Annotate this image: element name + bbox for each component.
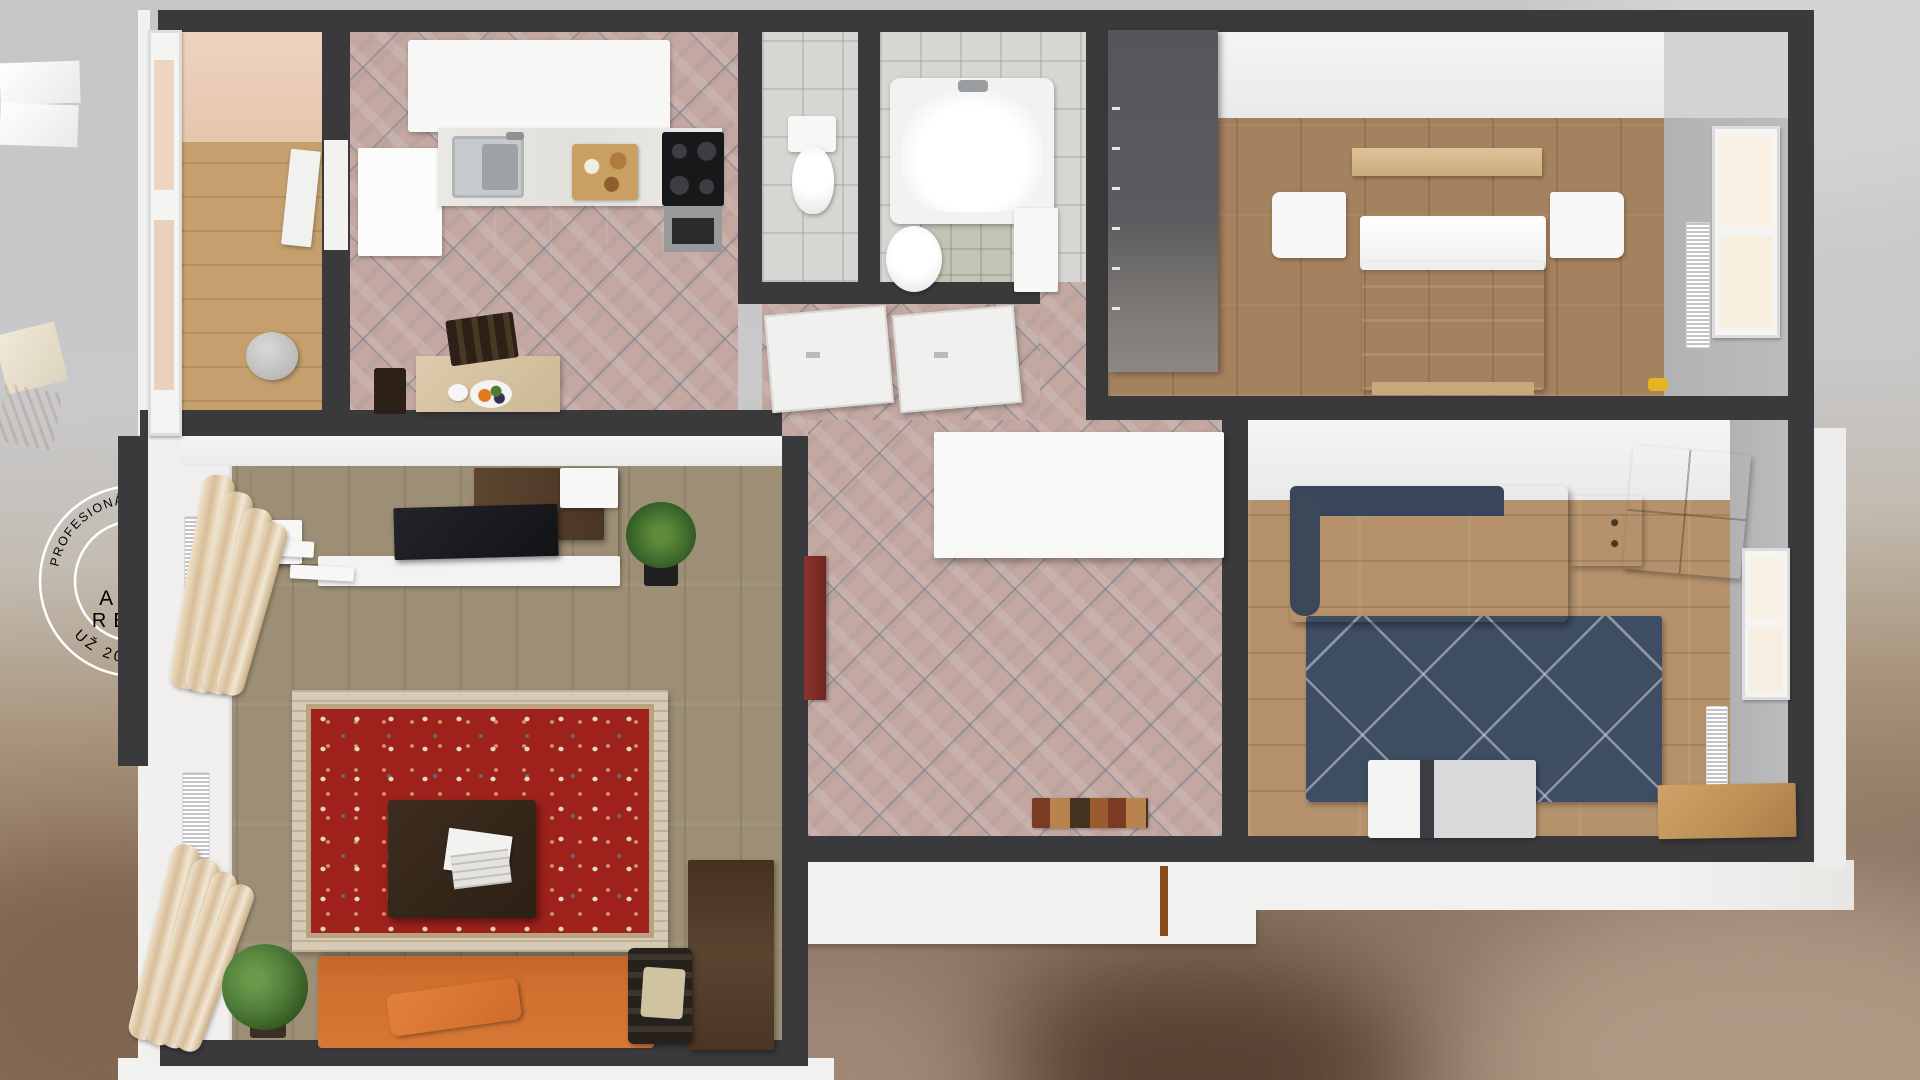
kitchen-oven-glass [672, 218, 714, 244]
bathroom-washer-cabinet [1014, 208, 1058, 292]
coffee-table-magazine2 [450, 849, 512, 890]
toilet-bowl [792, 146, 834, 214]
wall-living-hall [782, 436, 808, 1066]
entrance-door [0, 257, 133, 329]
hallway-wardrobe [934, 432, 1224, 558]
corridor-orange-door [0, 0, 20, 62]
entrance-door-edge [1160, 866, 1168, 936]
tv-unit-white-cube-right [560, 468, 618, 508]
hallway-orange-door-kids [0, 146, 26, 258]
bedroom-window-pane-top [1720, 136, 1772, 226]
wall-bath-bedroom [1086, 10, 1108, 420]
kitchen-lower-cabinets [438, 204, 664, 252]
nightstand-left [1272, 192, 1346, 258]
kids-desk [1658, 783, 1797, 839]
bedroom-radiator [1686, 222, 1710, 348]
shell-kids-bottom [1248, 860, 1854, 910]
kitchen-cooktop [662, 132, 724, 206]
leafy-plant-foliage [222, 944, 308, 1030]
balcony-window-pane [154, 60, 174, 190]
dining-chair-top [445, 311, 519, 366]
dining-plate-fruit [470, 380, 512, 408]
shell-hallway-bottom [796, 860, 1256, 944]
entrance-door-handle [1046, 886, 1072, 908]
wall-hall-bottom [808, 836, 1248, 862]
kids-bed-dark-stripe [1420, 760, 1434, 838]
wall-kids-bottom [1248, 836, 1814, 862]
backdrop-blob-tan-right [1480, 880, 1920, 1080]
wall-kitchen-wc [738, 10, 762, 304]
kids-pillow-2 [0, 383, 63, 450]
bathroom-sink [886, 226, 942, 292]
kids-wardrobe [1623, 445, 1751, 579]
bedroom-window-pane-bottom [1720, 236, 1772, 328]
wall-under-wc-bath [738, 282, 1040, 304]
kids-window-pane-top [1749, 556, 1783, 620]
bedroom-closet [1108, 30, 1218, 372]
kitchen-upper-cabinets [408, 40, 670, 132]
wall-top [158, 10, 1814, 32]
kids-sofa-backrest [1290, 486, 1504, 516]
dining-teapot [448, 384, 468, 401]
wall-bedroom-right [1788, 10, 1814, 420]
wall-wc-bath [858, 30, 880, 304]
shell-right-strip [1814, 428, 1846, 868]
hallway-maroon-door [804, 556, 826, 700]
balcony-window-pane2 [154, 220, 174, 390]
balcony-round-table [246, 332, 298, 380]
plant-spiky-foliage [626, 502, 696, 568]
hallway-doormat [1032, 798, 1148, 828]
vestibule-door-left-handle [806, 352, 820, 358]
bed-foot-board [1372, 382, 1534, 395]
kids-sofa-armrest [1290, 492, 1320, 616]
dining-chair-left [374, 368, 406, 414]
tv-unit-lower-shelf [318, 556, 620, 586]
kitchen-cutting-board [572, 144, 638, 200]
wall-main-left [140, 410, 782, 436]
vestibule-door-right-handle [934, 352, 948, 358]
office-chair-cushion [640, 967, 685, 1020]
bed-grey-blanket [1362, 262, 1544, 390]
corridor-floor [1040, 282, 1086, 436]
backdrop-blob-dark-brown [980, 950, 1420, 1080]
kids-bed-blanket [1434, 760, 1536, 838]
balcony-door-frame [324, 140, 348, 250]
wall-bedroom-bottom [1108, 396, 1814, 420]
wall-kids-left [1222, 396, 1248, 862]
bed-pillow-right [0, 103, 79, 148]
kids-window-pane-bottom [1749, 628, 1783, 692]
bathtub-faucet [958, 80, 988, 92]
bathtub-basin [902, 92, 1042, 212]
floor-plan-render: 310 LOS ANGELES PHL ALL PHIL 215 NEW ORL… [0, 0, 1920, 1080]
bedroom-closet-shelf-lines [1112, 70, 1120, 310]
bedroom-yellow-toy [1648, 378, 1668, 391]
balcony-peach-wall [180, 30, 322, 142]
kitchen-fridge [358, 148, 442, 256]
vestibule-door-right [892, 305, 1022, 413]
wall-living-left-outer [118, 436, 148, 766]
flat-tv [393, 504, 558, 560]
nightstand-right [1550, 192, 1624, 258]
bed-headboard [1352, 148, 1542, 176]
kitchen-sink-basin [482, 144, 518, 190]
vestibule-door-left [764, 305, 894, 413]
living-desk [688, 860, 774, 1050]
kitchen-faucet [506, 132, 524, 140]
living-back-wall-face [180, 436, 782, 466]
bed-pillow-left [0, 61, 81, 106]
